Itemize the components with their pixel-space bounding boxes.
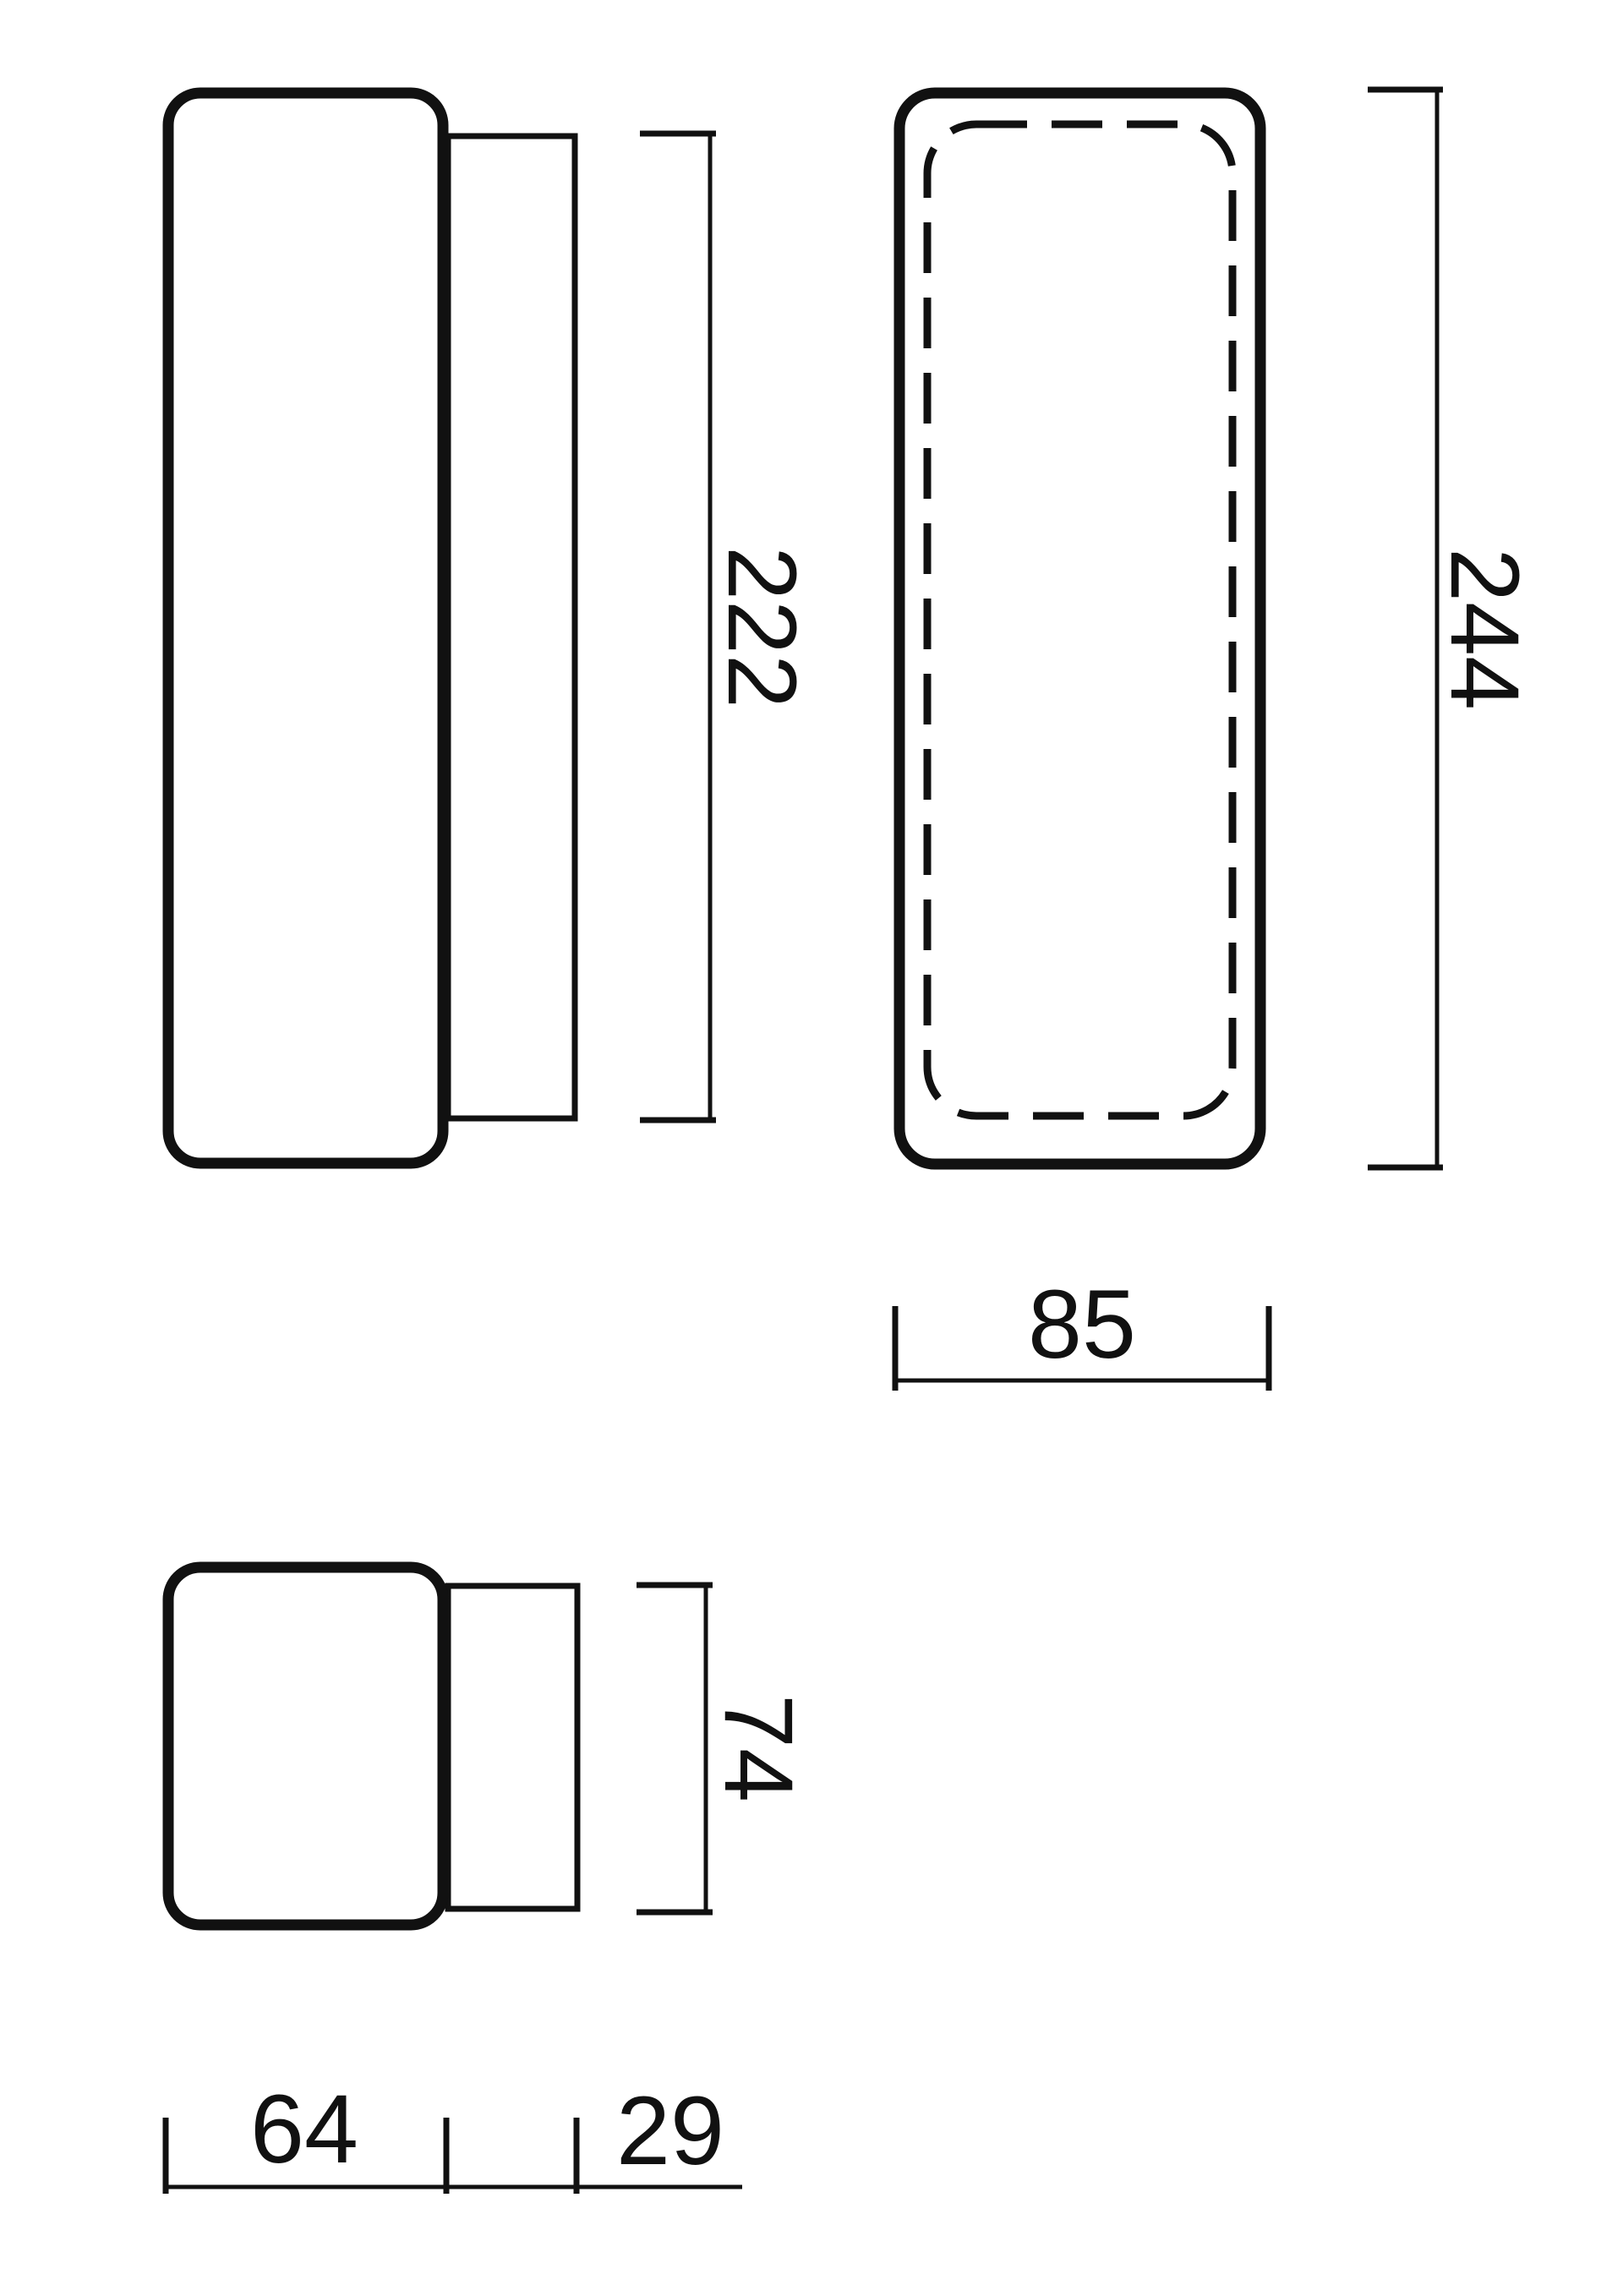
dim-label-85: 85 — [1028, 1271, 1136, 1379]
front-view: 244 85 — [895, 90, 1538, 1391]
dim-label-29: 29 — [616, 2077, 724, 2185]
top-view-backplate-outline — [448, 1586, 577, 1909]
dim-label-244: 244 — [1430, 548, 1538, 710]
dim-64-29: 64 29 — [163, 2075, 742, 2194]
dim-244: 244 — [1368, 90, 1538, 1167]
dim-85: 85 — [895, 1271, 1269, 1391]
side-view-body-outline — [168, 93, 443, 1163]
dim-222: 222 — [640, 134, 816, 1120]
front-view-body-outline — [899, 93, 1260, 1164]
dim-label-64: 64 — [250, 2075, 358, 2184]
technical-drawing-page: 222 244 85 — [0, 0, 1623, 2296]
top-view: 74 64 29 — [163, 1567, 812, 2194]
front-view-backplate-hidden-edge — [927, 124, 1232, 1116]
side-view-backplate-outline — [448, 136, 575, 1118]
dim-label-222: 222 — [708, 546, 816, 708]
lamp-dimension-drawing: 222 244 85 — [0, 0, 1623, 2296]
top-view-body-outline — [168, 1567, 443, 1925]
dim-label-74: 74 — [704, 1694, 812, 1802]
side-view: 222 — [168, 93, 816, 1163]
dim-74: 74 — [637, 1585, 812, 1912]
